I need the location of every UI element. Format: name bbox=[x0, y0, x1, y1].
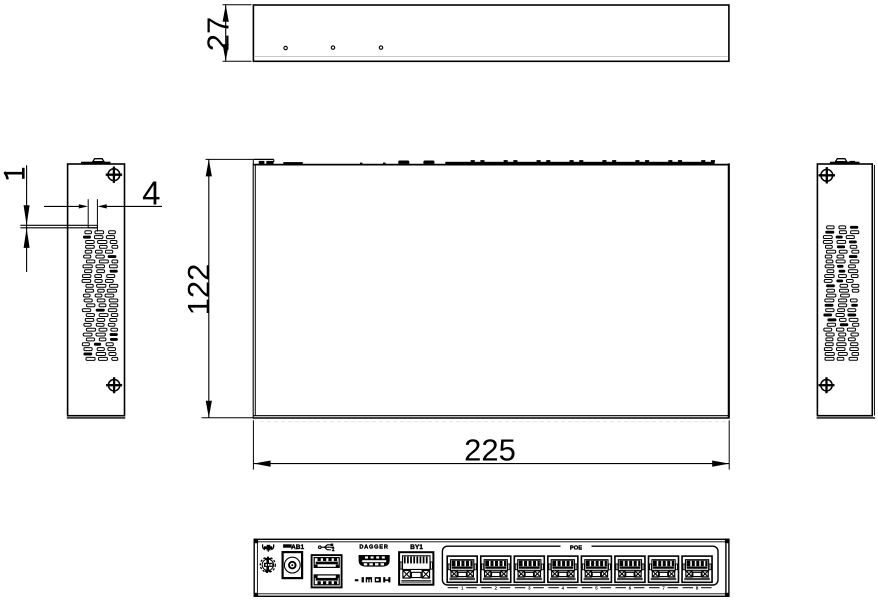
svg-text:7: 7 bbox=[662, 586, 665, 591]
svg-text:6: 6 bbox=[629, 586, 632, 591]
svg-text:225: 225 bbox=[464, 432, 516, 467]
svg-text:27: 27 bbox=[200, 17, 235, 51]
svg-text:2: 2 bbox=[494, 586, 497, 591]
svg-text:8: 8 bbox=[696, 586, 699, 591]
svg-text:5: 5 bbox=[595, 586, 598, 591]
svg-text:POE: POE bbox=[570, 545, 582, 551]
svg-text:AB1: AB1 bbox=[291, 544, 304, 551]
svg-text:DAGGER: DAGGER bbox=[359, 544, 388, 550]
svg-text:122: 122 bbox=[181, 264, 216, 316]
svg-text:1: 1 bbox=[461, 586, 464, 591]
svg-text:3: 3 bbox=[528, 586, 531, 591]
svg-text:4: 4 bbox=[562, 586, 565, 591]
svg-text:BY1: BY1 bbox=[410, 544, 423, 551]
svg-text:4: 4 bbox=[142, 175, 160, 212]
